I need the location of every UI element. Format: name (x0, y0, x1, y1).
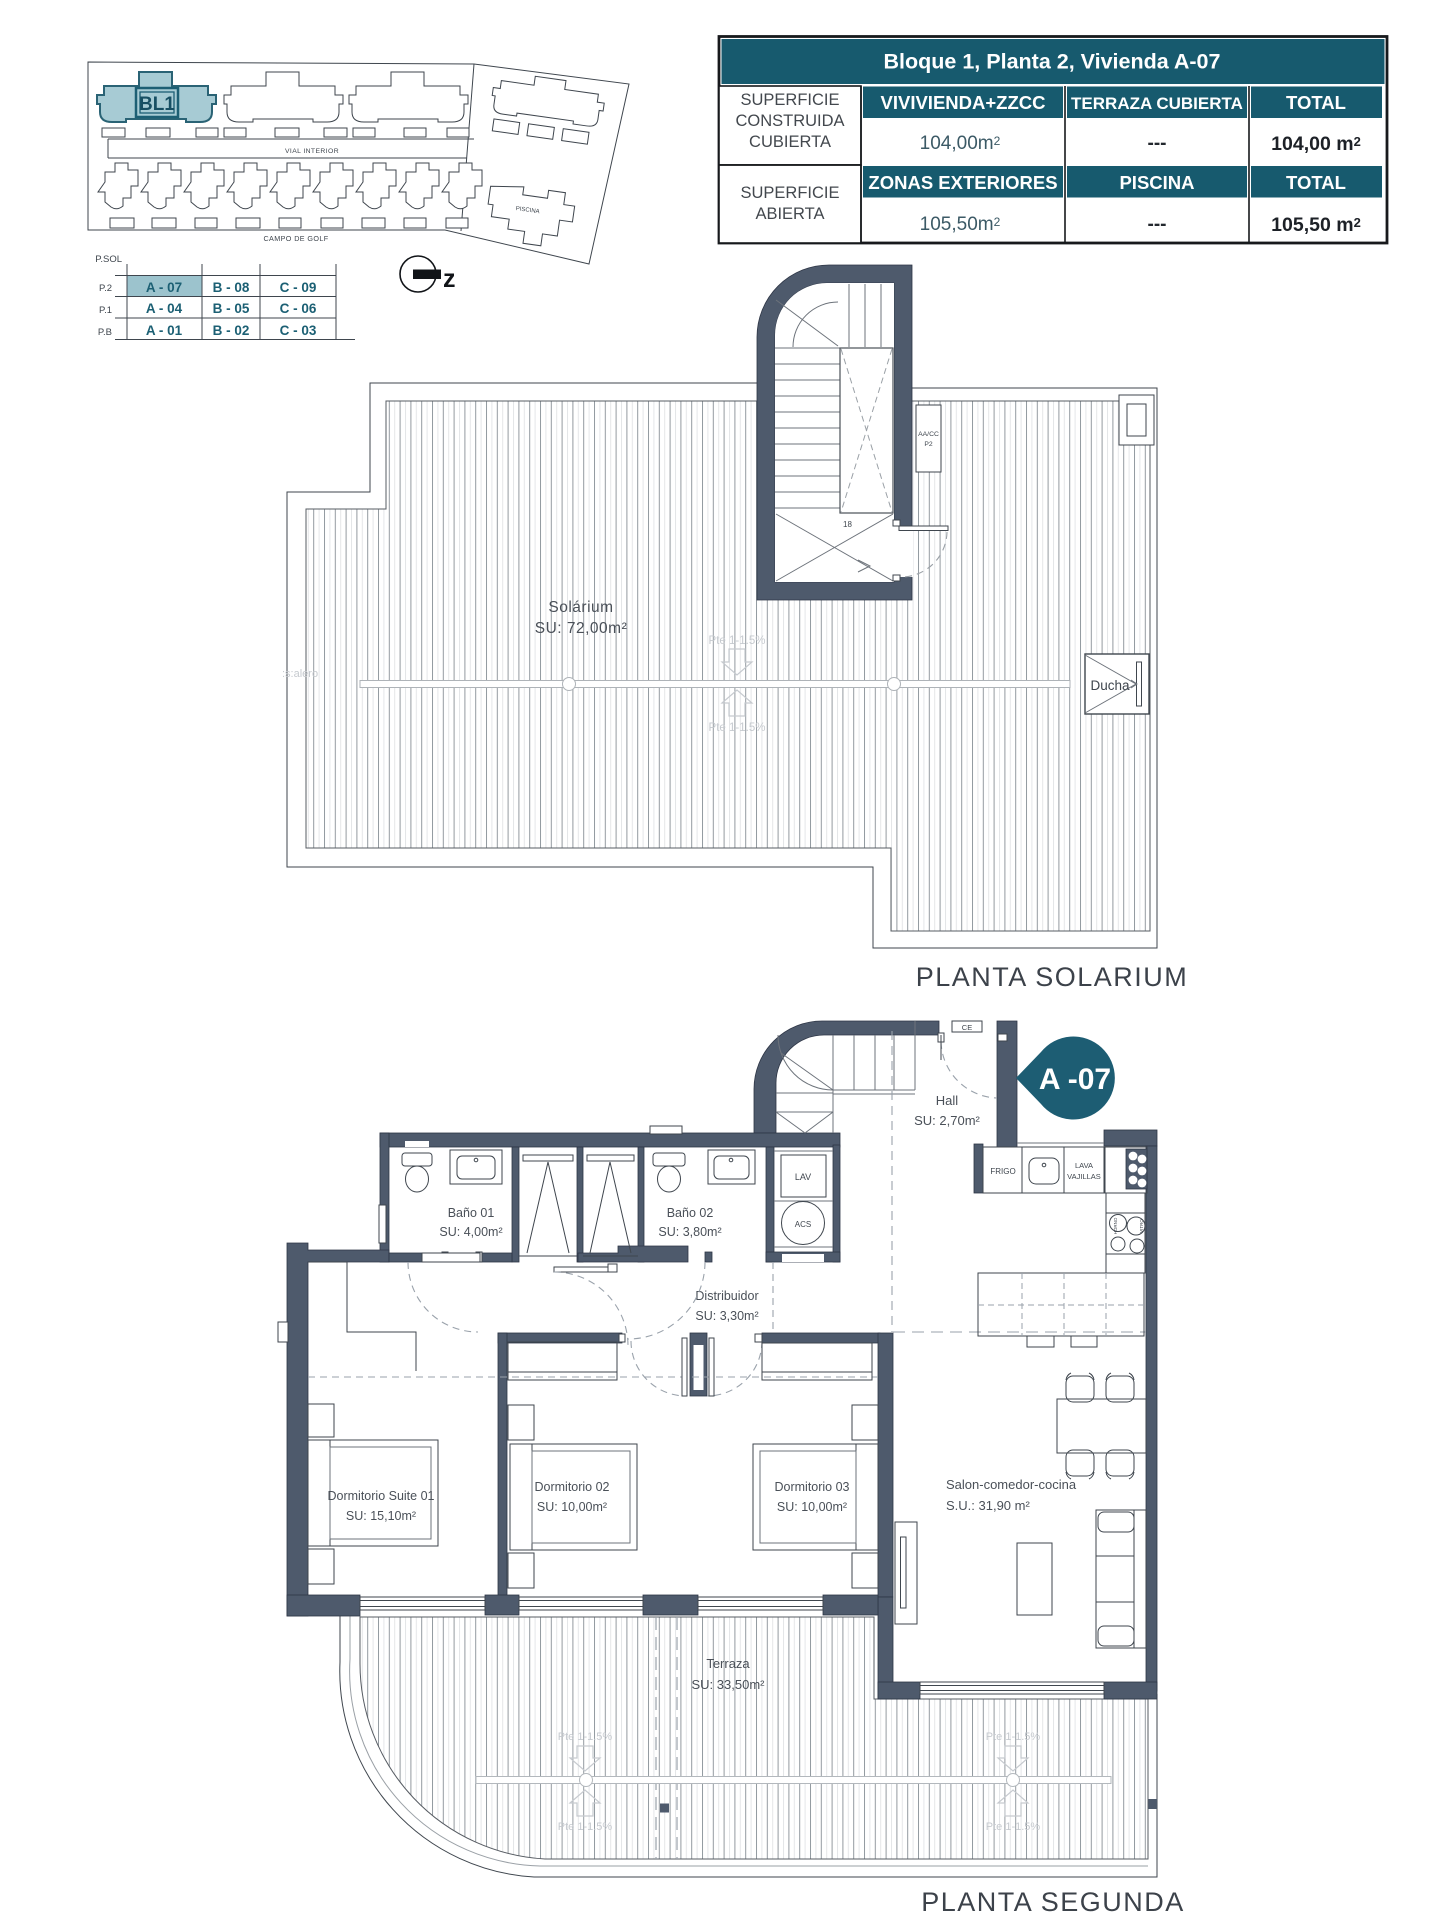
svg-text:AA/CC: AA/CC (918, 431, 939, 438)
svg-text:SU: 72,00m²: SU: 72,00m² (535, 620, 628, 637)
svg-text:Dormitorio 02: Dormitorio 02 (534, 1480, 609, 1494)
svg-text:B - 08: B - 08 (213, 280, 250, 295)
svg-text:SUPERFICIE: SUPERFICIE (740, 91, 839, 109)
svg-text:C - 06: C - 06 (280, 301, 317, 316)
svg-text:Ducha: Ducha (1090, 678, 1130, 693)
svg-text:A - 04: A - 04 (146, 301, 183, 316)
svg-text:SU: 15,10m²: SU: 15,10m² (346, 1509, 416, 1523)
svg-text:Baño 01: Baño 01 (448, 1206, 495, 1220)
svg-text:18: 18 (843, 520, 852, 529)
svg-text:TERRAZA CUBIERTA: TERRAZA CUBIERTA (1071, 94, 1243, 113)
svg-text:Pte 1-1.5%: Pte 1-1.5% (558, 1731, 613, 1743)
svg-text:P.SOL: P.SOL (95, 254, 122, 265)
svg-text:FRIGO: FRIGO (990, 1167, 1015, 1176)
svg-text:105,50m2: 105,50m2 (920, 214, 1001, 235)
svg-text:PISCINA: PISCINA (1119, 172, 1194, 193)
svg-text:P.B: P.B (98, 327, 112, 338)
svg-text:SU: 3,30m²: SU: 3,30m² (695, 1309, 758, 1323)
svg-text:PLANTA SEGUNDA: PLANTA SEGUNDA (921, 1887, 1185, 1917)
svg-text:SU: 4,00m²: SU: 4,00m² (439, 1225, 502, 1239)
svg-text:BL1: BL1 (139, 94, 175, 115)
svg-text:---: --- (1148, 214, 1167, 235)
svg-text:LAVA: LAVA (1075, 1161, 1093, 1170)
svg-text:SU: 3,80m²: SU: 3,80m² (658, 1225, 721, 1239)
svg-text:A - 01: A - 01 (146, 323, 183, 338)
svg-text:S.U.: 31,90 m²: S.U.: 31,90 m² (946, 1498, 1030, 1513)
svg-text:A -07: A -07 (1039, 1063, 1111, 1096)
svg-text:TOTAL: TOTAL (1286, 92, 1346, 113)
svg-text:ZONAS EXTERIORES: ZONAS EXTERIORES (868, 172, 1057, 193)
svg-text:SU: 10,00m²: SU: 10,00m² (777, 1500, 847, 1514)
svg-text:VAJILLAS: VAJILLAS (1067, 1172, 1101, 1181)
svg-text:---: --- (1148, 133, 1167, 154)
svg-text:Salon-comedor-cocina: Salon-comedor-cocina (946, 1477, 1077, 1492)
svg-text:SU: 2,70m²: SU: 2,70m² (914, 1113, 980, 1128)
svg-text:Terraza: Terraza (706, 1656, 750, 1671)
svg-text:Dormitorio Suite 01: Dormitorio Suite 01 (328, 1489, 435, 1503)
svg-text:P.2: P.2 (99, 283, 112, 294)
svg-text:ABIERTA: ABIERTA (755, 205, 824, 223)
svg-text:Pte 1-1.5%: Pte 1-1.5% (558, 1821, 613, 1833)
svg-text:CONSTRUIDA: CONSTRUIDA (735, 112, 844, 130)
svg-text:C - 09: C - 09 (280, 280, 317, 295)
svg-text:C - 03: C - 03 (280, 323, 317, 338)
svg-text:Pte 1-1.5%: Pte 1-1.5% (986, 1821, 1041, 1833)
svg-text:P2: P2 (924, 441, 933, 448)
svg-text:HORNO: HORNO (1113, 1217, 1118, 1234)
svg-text:VIVIVIENDA+ZZCC: VIVIVIENDA+ZZCC (881, 92, 1046, 113)
svg-text:Distribuidor: Distribuidor (695, 1289, 758, 1303)
svg-text:TOTAL: TOTAL (1286, 172, 1346, 193)
svg-text:Pte 1-1.5%: Pte 1-1.5% (709, 635, 766, 647)
svg-text:CE: CE (962, 1023, 972, 1032)
svg-text:A - 07: A - 07 (146, 280, 182, 295)
svg-text:B - 02: B - 02 (213, 323, 250, 338)
svg-text:104,00 m2: 104,00 m2 (1271, 133, 1361, 155)
svg-text:Hall: Hall (936, 1093, 959, 1108)
svg-text:CUBIERTA: CUBIERTA (749, 133, 831, 151)
svg-text:ACS: ACS (795, 1220, 811, 1229)
svg-text:Pte 1-1.5%: Pte 1-1.5% (709, 722, 766, 734)
svg-text:SU: 33,50m²: SU: 33,50m² (692, 1677, 766, 1692)
svg-text:SU: 10,00m²: SU: 10,00m² (537, 1500, 607, 1514)
svg-text:Pte 1-1.5%: Pte 1-1.5% (986, 1731, 1041, 1743)
svg-text:VITRO: VITRO (1139, 1219, 1144, 1233)
svg-text:Solárium: Solárium (548, 599, 613, 616)
svg-text:z: z (443, 265, 456, 293)
svg-text::s:alero: :s:alero (282, 668, 318, 680)
svg-text:CAMPO DE GOLF: CAMPO DE GOLF (263, 234, 328, 243)
svg-text:SUPERFICIE: SUPERFICIE (740, 184, 839, 202)
svg-text:Dormitorio 03: Dormitorio 03 (774, 1480, 849, 1494)
svg-text:PLANTA SOLARIUM: PLANTA SOLARIUM (916, 962, 1189, 992)
svg-text:Bloque 1, Planta 2, Vivienda A: Bloque 1, Planta 2, Vivienda A-07 (884, 50, 1221, 74)
svg-text:LAV: LAV (795, 1172, 811, 1182)
svg-text:104,00m2: 104,00m2 (920, 133, 1001, 154)
svg-text:105,50 m2: 105,50 m2 (1271, 214, 1361, 236)
svg-text:B - 05: B - 05 (213, 301, 250, 316)
svg-text:Baño 02: Baño 02 (667, 1206, 714, 1220)
svg-text:P.1: P.1 (99, 305, 112, 316)
svg-text:VIAL INTERIOR: VIAL INTERIOR (285, 148, 339, 155)
